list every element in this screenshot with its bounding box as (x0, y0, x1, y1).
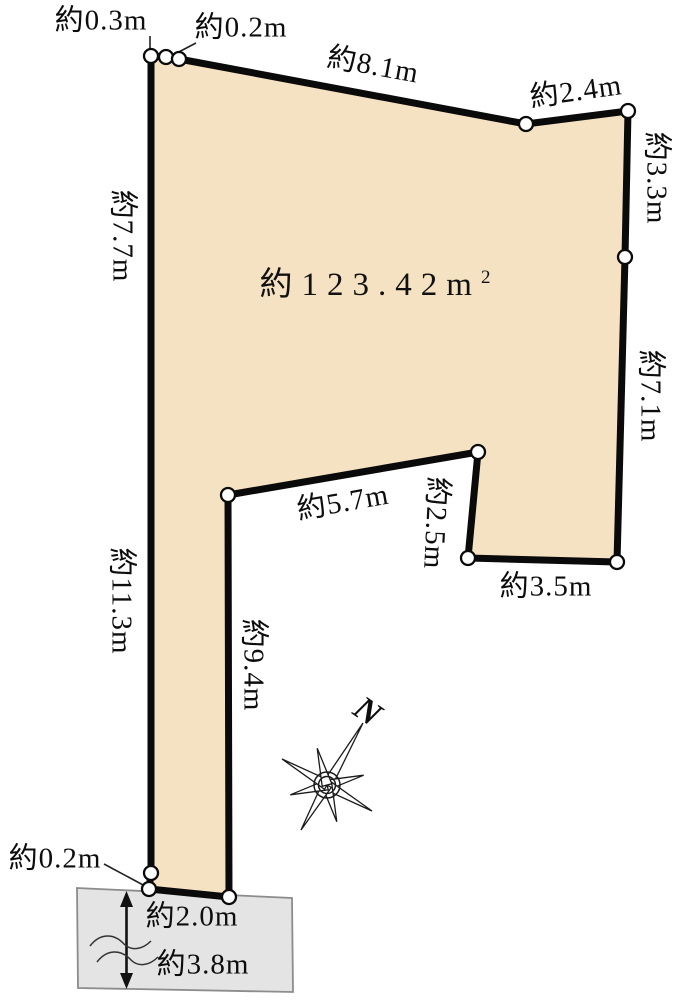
vertex-dot (221, 488, 235, 502)
vertex-dot (159, 50, 173, 64)
measurement-road-width-near: 約2.0m (146, 903, 239, 932)
vertex-dot (144, 866, 158, 880)
measurement-top-left-b: 約0.2m (195, 14, 288, 43)
vertex-dot (621, 104, 635, 118)
leader-line (104, 864, 145, 886)
measurement-left-lower: 約11.3m (107, 547, 136, 654)
measurement-notch-bottom: 約3.5m (500, 573, 593, 602)
measurement-bottom-left: 約0.2m (9, 845, 102, 874)
vertex-dot (519, 117, 533, 131)
vertex-dot (461, 551, 475, 565)
measurement-top-left-a: 約0.3m (55, 7, 148, 36)
lot-survey-diagram: 約0.3m 約0.2m 約8.1m 約2.4m 約3.3m 約7.1m 約7.7… (0, 0, 678, 1000)
measurement-left-upper: 約7.7m (108, 190, 137, 283)
vertex-dot (144, 49, 158, 63)
vertex-dot (610, 555, 624, 569)
measurement-notch-right: 約2.5m (418, 476, 452, 570)
vertex-dot (471, 445, 485, 459)
measurement-road-width-far: 約3.8m (157, 951, 250, 980)
vertex-dot (142, 882, 156, 896)
measurement-right-upper: 約3.3m (642, 132, 671, 225)
lot-polygon (149, 56, 628, 897)
measurement-right-lower: 約7.1m (636, 350, 665, 443)
lot-area-label: 約123.42m2 (260, 257, 491, 305)
measurement-strip-right: 約9.4m (239, 619, 268, 712)
compass-rose-icon (282, 723, 372, 830)
vertex-dot (618, 250, 632, 264)
vertex-dot (172, 52, 186, 66)
